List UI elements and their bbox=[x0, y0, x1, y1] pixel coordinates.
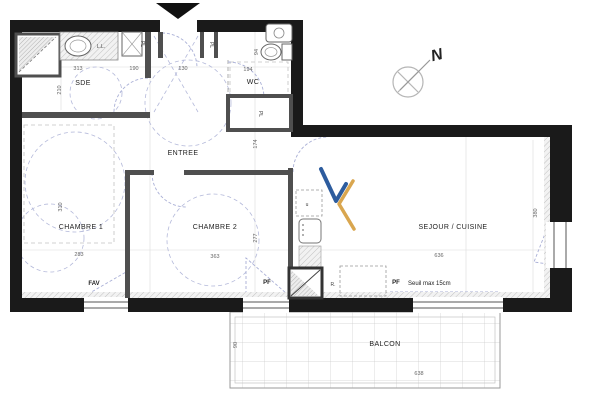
room-label-chambre1: CHAMBRE 1 bbox=[59, 224, 103, 231]
label-pf-right: PF bbox=[392, 280, 400, 286]
kitchen-wall bbox=[288, 168, 293, 268]
dim-chambre2-width: 363 bbox=[210, 254, 219, 260]
label-storage: R. bbox=[331, 282, 336, 288]
dim-chambre1-height: 310 bbox=[58, 202, 64, 211]
sejour-top-wall bbox=[291, 125, 572, 137]
dim-entree-b: 130 bbox=[178, 66, 187, 72]
small-basin-icon bbox=[122, 32, 142, 56]
storage-dashed-box bbox=[340, 266, 386, 296]
vanity-sink-icon bbox=[60, 32, 118, 60]
chambre2-door-arc bbox=[152, 173, 186, 207]
dim-sejour-height: 380 bbox=[533, 208, 539, 217]
dim-entree-a: 190 bbox=[129, 66, 138, 72]
entrance-arrow-icon bbox=[156, 3, 200, 19]
balcony bbox=[230, 306, 500, 388]
sejour-door-arc bbox=[293, 137, 328, 172]
windows bbox=[84, 20, 578, 313]
chambre2-top-wall-a bbox=[128, 170, 154, 175]
kitchen-counter bbox=[299, 246, 321, 267]
room-label-sejour: SEJOUR / CUISINE bbox=[418, 224, 487, 231]
room-label-sde: SDE bbox=[75, 80, 91, 87]
pf-left-window bbox=[243, 297, 289, 313]
dim-wc-height: 94 bbox=[254, 49, 260, 55]
entrance-door-arc bbox=[162, 33, 197, 68]
floor-plan-drawing: N SDE WC ENTREE CHAMBRE 1 CHAMBRE 2 SEJO… bbox=[0, 0, 600, 408]
label-kitchen-appliance: u bbox=[306, 202, 309, 208]
sde-door-arc bbox=[114, 78, 148, 112]
shower-icon bbox=[16, 34, 60, 76]
north-compass-icon bbox=[393, 60, 430, 97]
label-seuil: Seuil max 15cm bbox=[408, 281, 451, 287]
floor-plan-page: N SDE WC ENTREE CHAMBRE 1 CHAMBRE 2 SEJO… bbox=[0, 0, 600, 408]
label-pl-closet: PL bbox=[257, 111, 263, 117]
dim-chambre1-width: 283 bbox=[74, 252, 83, 258]
duct-shaft-icon bbox=[289, 268, 322, 298]
wc-hand-basin-icon bbox=[266, 24, 292, 42]
top-wall-left bbox=[10, 20, 160, 32]
room-label-wc: WC bbox=[247, 79, 259, 86]
chambre-separating-wall bbox=[125, 170, 130, 298]
sde-bottom-wall bbox=[22, 112, 150, 118]
fav-window bbox=[84, 297, 128, 313]
north-label: N bbox=[429, 46, 445, 65]
kitchen-sink-icon bbox=[299, 219, 321, 243]
fixtures bbox=[16, 24, 386, 298]
dim-sde-width: 313 bbox=[73, 66, 82, 72]
entrance-opening bbox=[160, 20, 197, 32]
label-pl-sde: PL bbox=[139, 41, 145, 47]
logo-mark bbox=[321, 169, 354, 229]
dim-balcon-depth: 90 bbox=[233, 342, 239, 348]
room-label-balcon: BALCON bbox=[369, 341, 400, 348]
dim-sde-height: 210 bbox=[57, 85, 63, 94]
sde-right-wall bbox=[145, 32, 151, 78]
dim-wc-width: 194 bbox=[243, 67, 252, 73]
dim-sejour-width: 636 bbox=[434, 253, 443, 259]
dim-chambre2-height: 277 bbox=[253, 233, 259, 242]
kitchen-appliance-dashed bbox=[296, 190, 322, 216]
room-label-chambre2: CHAMBRE 2 bbox=[193, 224, 237, 231]
entry-closet-wall-a bbox=[158, 32, 163, 58]
label-pl-entree: PL bbox=[208, 42, 214, 48]
pf-right-window bbox=[413, 297, 503, 313]
chambre2-top-wall-b bbox=[184, 170, 293, 175]
room-label-entree: ENTREE bbox=[168, 150, 199, 157]
dim-balcon-width: 638 bbox=[414, 371, 423, 377]
label-washing-machine: L.L. bbox=[97, 44, 105, 50]
label-pf-left: PF bbox=[263, 280, 271, 286]
entry-closet-wall-b bbox=[200, 32, 204, 58]
dim-pl-height: 174 bbox=[253, 139, 259, 148]
sejour-right-window bbox=[546, 222, 578, 268]
right-wall-sill bbox=[544, 137, 550, 292]
label-fav: FAV bbox=[88, 281, 99, 287]
toilet-icon bbox=[261, 44, 292, 60]
